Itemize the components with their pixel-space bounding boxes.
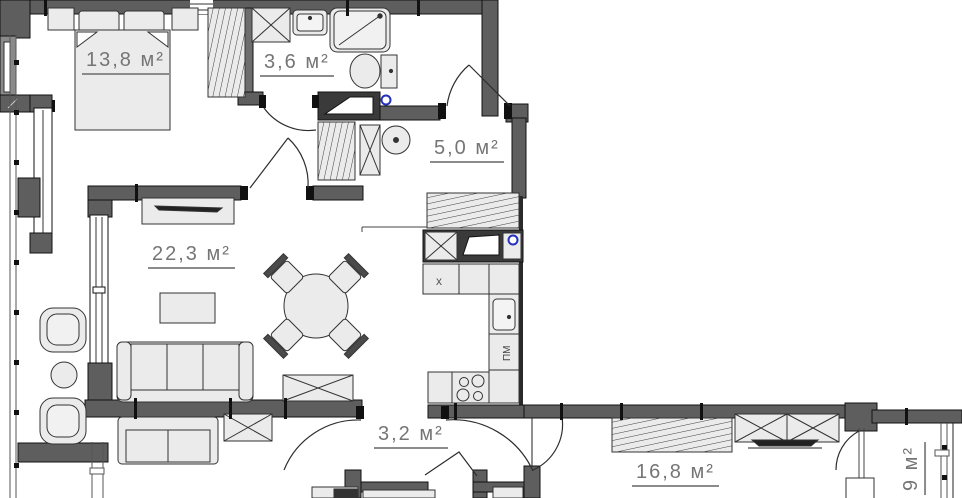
vent-box-label: x [436,274,442,288]
sink-icon [293,10,327,35]
room-label-bedroom-2: 16,8 м² [632,460,719,487]
vent-shaft-icon [423,230,523,262]
room-label-hallway: 5,0 м² [430,136,504,163]
bedroom-door [240,138,314,200]
floor-plan: x ПМ [0,0,962,498]
room-label-corridor: 3,2 м² [374,422,448,449]
bathroom-door [259,95,319,131]
entrance-door [438,65,512,119]
room-label-balcony-2: 9 м² [899,442,926,495]
bathroom-cabinet-icon [252,8,290,42]
tv-stand [142,198,234,224]
room-label-bedroom: 13,8 м² [82,48,169,75]
room-label-bathroom: 3,6 м² [260,50,334,77]
sofa-2 [118,417,218,464]
dining-table [264,254,369,359]
balcony-armchair [40,398,86,444]
wardrobe-icon [427,193,519,228]
water-riser-icon [382,96,391,105]
room-label-living-room: 22,3 м² [148,242,235,269]
room2-door [533,417,563,470]
wardrobe-icon [208,8,245,97]
wardrobe-icon [612,418,732,452]
vent-shaft-icon [318,92,380,120]
boiler-icon [382,126,410,154]
shower-icon [330,8,390,52]
cabinet-icon [360,125,380,175]
dishwasher-label: ПМ [502,345,513,361]
water-riser-icon [509,236,518,245]
tv-icon [748,440,822,448]
balcony-armchair [40,308,86,352]
coffee-table [160,293,215,323]
balcony-2-furniture [846,478,874,498]
sideboard-icon [283,375,353,401]
wardrobe-icon [318,122,355,180]
toilet-icon [350,54,397,88]
cabinet-icon [735,414,839,442]
balcony-table [51,362,77,388]
sofa [117,342,253,402]
